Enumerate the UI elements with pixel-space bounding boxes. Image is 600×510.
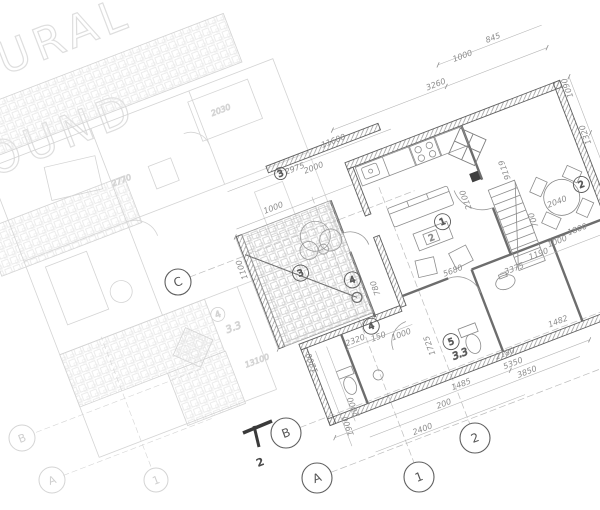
dimension-label: 2030 [210,102,232,118]
chair-icon [530,177,547,196]
chair-icon [576,198,593,217]
dimension-label: 780 [368,279,382,296]
dimension-label: 2100 [458,189,474,211]
faint-room-tag: 4 [214,310,223,321]
dimension-label: 1000 [546,234,568,250]
faint-bed [45,251,108,325]
dimension-label: 2400 [411,421,433,437]
room-tag-bath: 4 [367,321,376,332]
dimension-label: 1482 [547,314,569,330]
section-marker-label: 2 [254,455,266,470]
dimension-label: 3850 [516,364,538,380]
small-sink-icon [372,368,385,381]
dimension-label: 9119 [497,159,513,181]
room-tag-living: 1 [438,217,447,228]
faint-grid-bubble-label: 1 [151,473,162,488]
dimension-label: 845 [484,31,501,45]
dimension-label: 1000 [262,200,284,216]
floor-plan-drawing: ARCHITECTURAL BACKGROUND 2030 277 [0,0,600,510]
room-tag-store: 5 [447,337,456,348]
dimension-label: 2000 [303,160,325,176]
dimension-label: 1485 [450,377,472,393]
dimension-label: 3375 [503,261,525,277]
dimension-label: 1000 [451,48,473,64]
room-plate-label: 2 [427,233,436,244]
architectural-background-image: ARCHITECTURAL BACKGROUND 2030 277 [0,0,600,510]
chair-icon [542,212,561,229]
dimension-label: 5680 [442,263,464,279]
dimension-label: 1190 [527,246,549,262]
faint-grid-bubble-label: B [16,431,28,446]
faint-grid-bubble-label: A [46,473,58,488]
grid-axes [178,97,600,510]
faint-paving-band-left [0,176,142,276]
faint-chair [107,277,135,305]
dimension-label: 1725 [422,334,438,356]
main-floor-plan: 2 [147,13,600,510]
sink-icon [361,163,380,180]
section-marker: 2 [243,421,272,470]
dimension-label: 2320 [344,333,366,349]
dimension-label: 1200 [304,352,320,374]
dimension-label: 1000 [390,327,412,343]
dimension-label: 2040 [546,194,568,210]
faint-cabinet [148,158,179,189]
armchair-icon [415,257,437,278]
room-tag-dining: 2 [577,180,586,191]
dimension-label: 13100 [244,352,271,370]
faint-level-mark: 3.3 [224,320,243,336]
dimension-label: 3260 [425,77,447,93]
dimension-label: 1800 [566,222,588,238]
faint-door-arc [184,126,210,152]
